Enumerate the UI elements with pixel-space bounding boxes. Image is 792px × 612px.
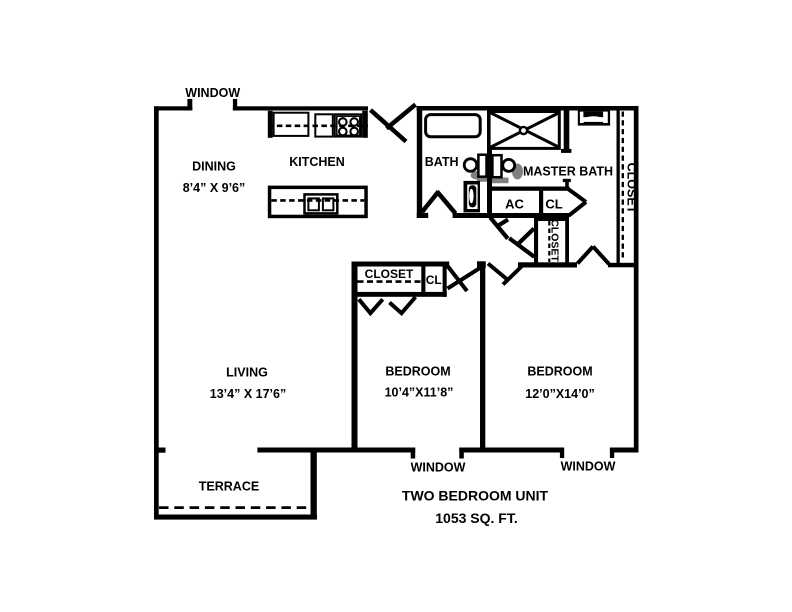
svg-text:AC: AC [505,196,524,211]
svg-text:CL: CL [545,196,562,211]
svg-text:TWO BEDROOM UNIT: TWO BEDROOM UNIT [402,488,549,504]
svg-text:CLOSET: CLOSET [365,267,414,281]
svg-text:KITCHEN: KITCHEN [289,155,345,169]
svg-text:BEDROOM: BEDROOM [527,364,592,378]
svg-text:BATH: BATH [425,155,459,169]
svg-text:MASTER BATH: MASTER BATH [523,165,613,179]
svg-text:WINDOW: WINDOW [411,461,466,475]
svg-text:12’0”X14’0”: 12’0”X14’0” [525,387,595,401]
svg-text:13’4” X 17’6”: 13’4” X 17’6” [210,387,286,401]
svg-text:LIVING: LIVING [226,366,268,380]
svg-text:10’4”X11’8”: 10’4”X11’8” [385,386,454,400]
svg-text:CLOSET: CLOSET [548,219,560,262]
svg-text:CLOSET: CLOSET [625,163,639,214]
svg-text:WINDOW: WINDOW [561,460,616,474]
svg-text:DINING: DINING [192,160,236,174]
svg-text:WINDOW: WINDOW [185,86,240,100]
svg-text:8’4” X 9’6”: 8’4” X 9’6” [183,181,246,195]
svg-text:CL: CL [426,273,442,287]
svg-text:BEDROOM: BEDROOM [385,365,450,379]
svg-text:TERRACE: TERRACE [199,480,259,494]
svg-text:1053 SQ. FT.: 1053 SQ. FT. [435,510,517,526]
